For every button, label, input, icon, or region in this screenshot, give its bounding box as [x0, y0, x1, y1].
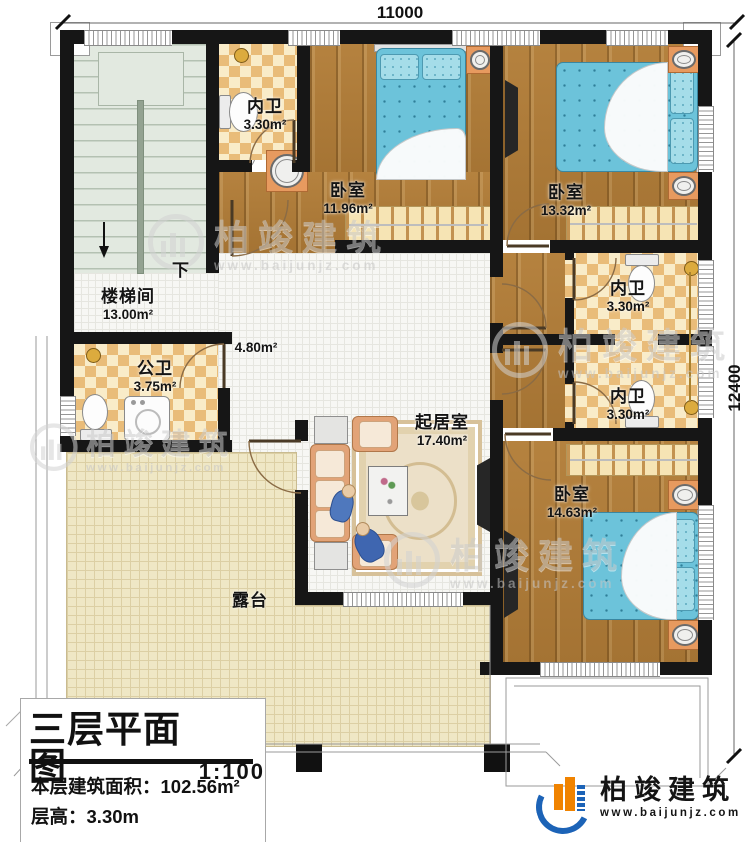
- hall-area-label: 4.80m²: [235, 340, 278, 355]
- wall: [660, 662, 712, 675]
- room-label-bath-mid1: 内卫 3.30m²: [607, 274, 650, 314]
- nightstand: [668, 620, 702, 650]
- stair-rail: [137, 100, 144, 274]
- stair-landing: [98, 52, 184, 106]
- room-label-bath-mid2: 内卫 3.30m²: [607, 382, 650, 422]
- coffee-table: [368, 466, 408, 516]
- title-underline: [29, 759, 253, 764]
- brand-website: www.baijunjz.com: [600, 807, 741, 819]
- wall: [490, 30, 503, 277]
- bed-bedroom1: [374, 44, 466, 182]
- room-label-living: 起居室 17.40m²: [415, 408, 469, 448]
- brand-logo: 柏竣建筑 www.baijunjz.com: [538, 768, 741, 826]
- wall: [553, 428, 712, 441]
- nightstand: [668, 172, 700, 200]
- wall: [295, 592, 343, 605]
- window-terrace-door: [343, 592, 463, 607]
- top-dimension: 11000: [330, 3, 470, 23]
- window: [698, 505, 714, 620]
- watermark-logo-icon: [30, 423, 78, 471]
- room-label-bedroom2: 卧室 13.32m²: [541, 178, 591, 218]
- window: [84, 30, 172, 46]
- tv-living: [477, 458, 490, 532]
- wall: [60, 332, 232, 344]
- brand-logo-icon: [538, 768, 590, 826]
- sofa-single-top: [352, 416, 398, 452]
- room-label-public-bath: 公卫 3.75m²: [134, 354, 177, 394]
- watermark: 柏竣建筑 www.baijunjz.com: [384, 528, 626, 591]
- wall: [206, 160, 252, 172]
- railing-post: [484, 744, 510, 772]
- room-label-terrace: 露台: [232, 586, 268, 611]
- wall: [550, 240, 712, 253]
- side-table: [314, 542, 348, 570]
- wall: [60, 30, 74, 452]
- wall: [565, 253, 574, 260]
- window: [452, 30, 540, 46]
- right-dimension: 12400: [725, 348, 745, 428]
- room-label-bath-top: 内卫 3.30m²: [244, 92, 287, 132]
- stair-down-label: 下: [172, 256, 190, 281]
- nightstand: [668, 46, 700, 73]
- tv-bedroom2: [505, 80, 518, 158]
- wall: [480, 662, 540, 675]
- bed-bedroom2: [556, 60, 702, 172]
- shower-bath-top: [234, 48, 249, 63]
- watermark-logo-icon: [384, 532, 440, 588]
- watermark: 柏竣建筑 www.baijunjz.com: [30, 420, 236, 474]
- wall: [297, 30, 310, 172]
- floor-area-row: 本层建筑面积：102.56m²: [31, 773, 240, 799]
- railing-post: [296, 744, 322, 772]
- wall: [295, 490, 308, 605]
- title-block: 三层平面图 1:100 本层建筑面积：102.56m² 层高：3.30m: [20, 698, 266, 842]
- room-label-bedroom1: 卧室 11.96m²: [323, 176, 373, 216]
- towel-hook: [684, 400, 699, 415]
- room-label-bedroom3: 卧室 14.63m²: [547, 480, 597, 520]
- watermark-logo-icon: [492, 322, 548, 378]
- towel-hook: [684, 261, 699, 276]
- wall: [463, 592, 490, 605]
- brand-name: 柏竣建筑: [600, 775, 741, 806]
- floor-height-row: 层高：3.30m: [31, 803, 139, 829]
- window: [288, 30, 340, 46]
- terrace-floor-lower: [295, 605, 491, 747]
- nightstand: [668, 480, 702, 510]
- shower-public-bath: [86, 348, 101, 363]
- window: [606, 30, 668, 46]
- wardrobe-bedroom3: [566, 444, 701, 476]
- room-label-stairwell: 楼梯间 13.00m²: [101, 282, 155, 322]
- floorplan-sheet: 11000 12400: [0, 0, 750, 842]
- side-table: [314, 416, 348, 444]
- watermark: 柏竣建筑 www.baijunjz.com: [492, 318, 734, 381]
- window: [540, 662, 660, 677]
- wall: [295, 420, 308, 441]
- window: [698, 106, 714, 172]
- wall: [292, 160, 310, 172]
